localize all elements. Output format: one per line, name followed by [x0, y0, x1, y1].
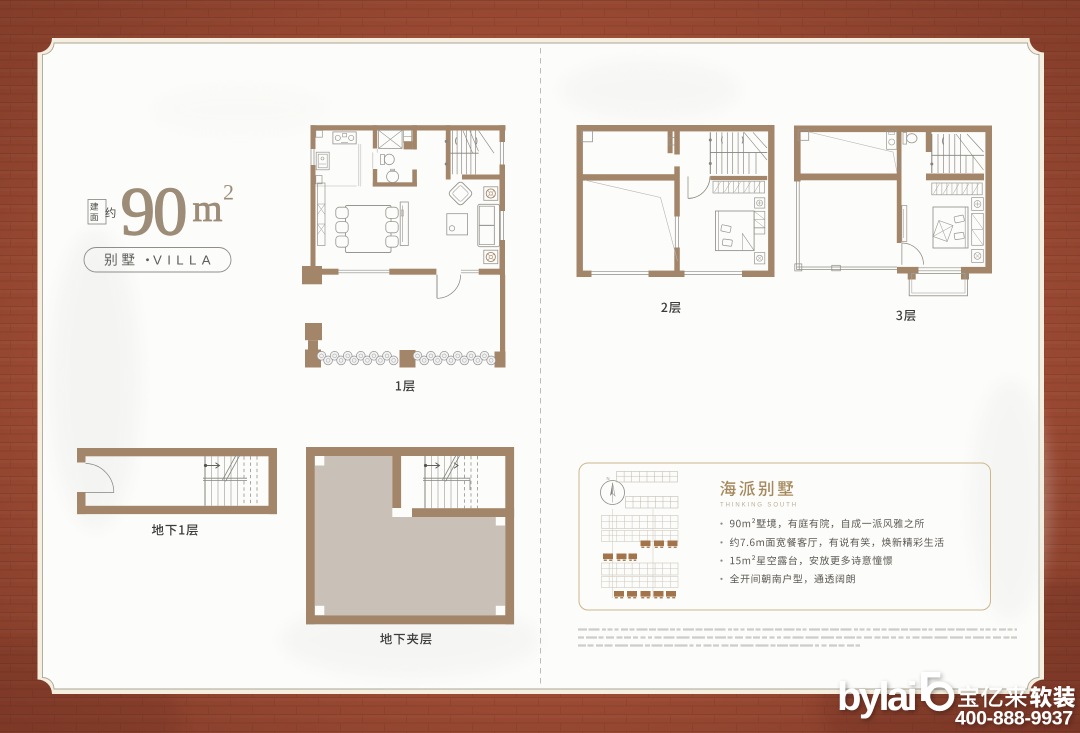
svg-text:bylai: bylai	[837, 675, 916, 719]
svg-text:N: N	[607, 476, 610, 481]
svg-text:2: 2	[223, 180, 234, 205]
svg-text:VILLA: VILLA	[153, 252, 216, 267]
svg-text:400-888-9937: 400-888-9937	[955, 708, 1073, 730]
svg-text:m: m	[193, 188, 223, 230]
svg-text:90: 90	[121, 174, 186, 250]
svg-text:THINKING SOUTH: THINKING SOUTH	[720, 502, 798, 508]
